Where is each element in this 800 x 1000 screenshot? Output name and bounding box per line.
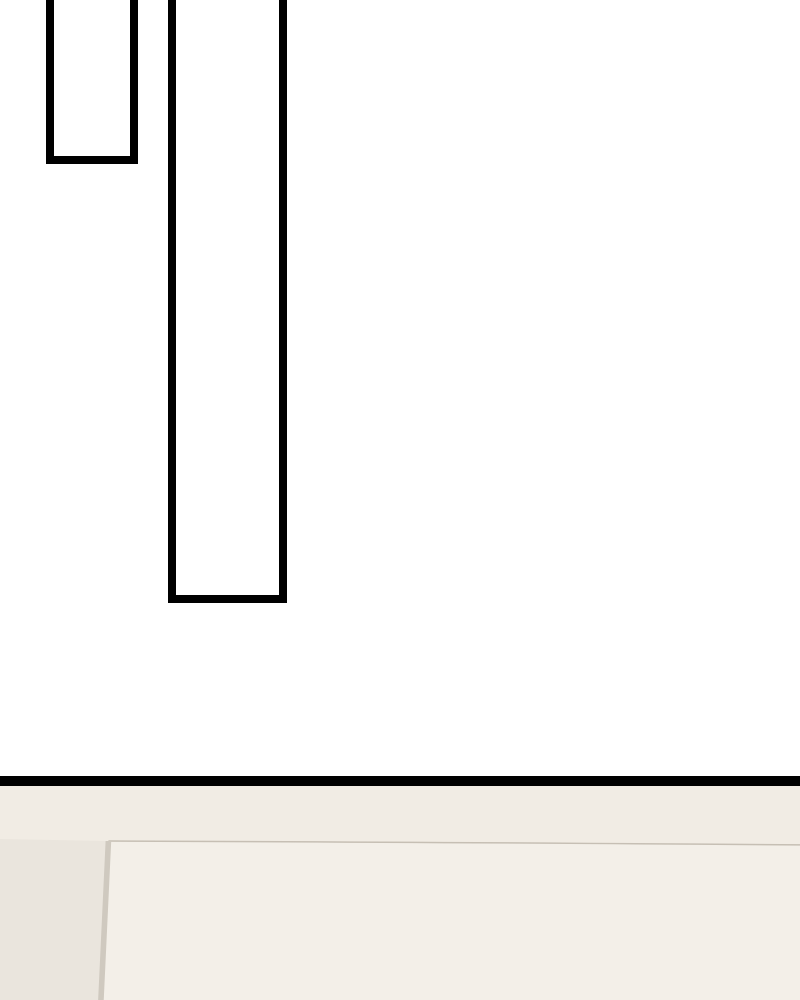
left-wall-outer-strip	[0, 839, 108, 1000]
scene-panel	[0, 786, 800, 1000]
empty-panel-frame-small	[46, 0, 138, 164]
scene-divider-bar	[0, 776, 800, 786]
empty-panel-frame-tall	[168, 0, 287, 603]
comic-page	[0, 0, 800, 1000]
wall-inset-panel	[101, 841, 800, 1000]
scene-illustration	[0, 786, 800, 1000]
